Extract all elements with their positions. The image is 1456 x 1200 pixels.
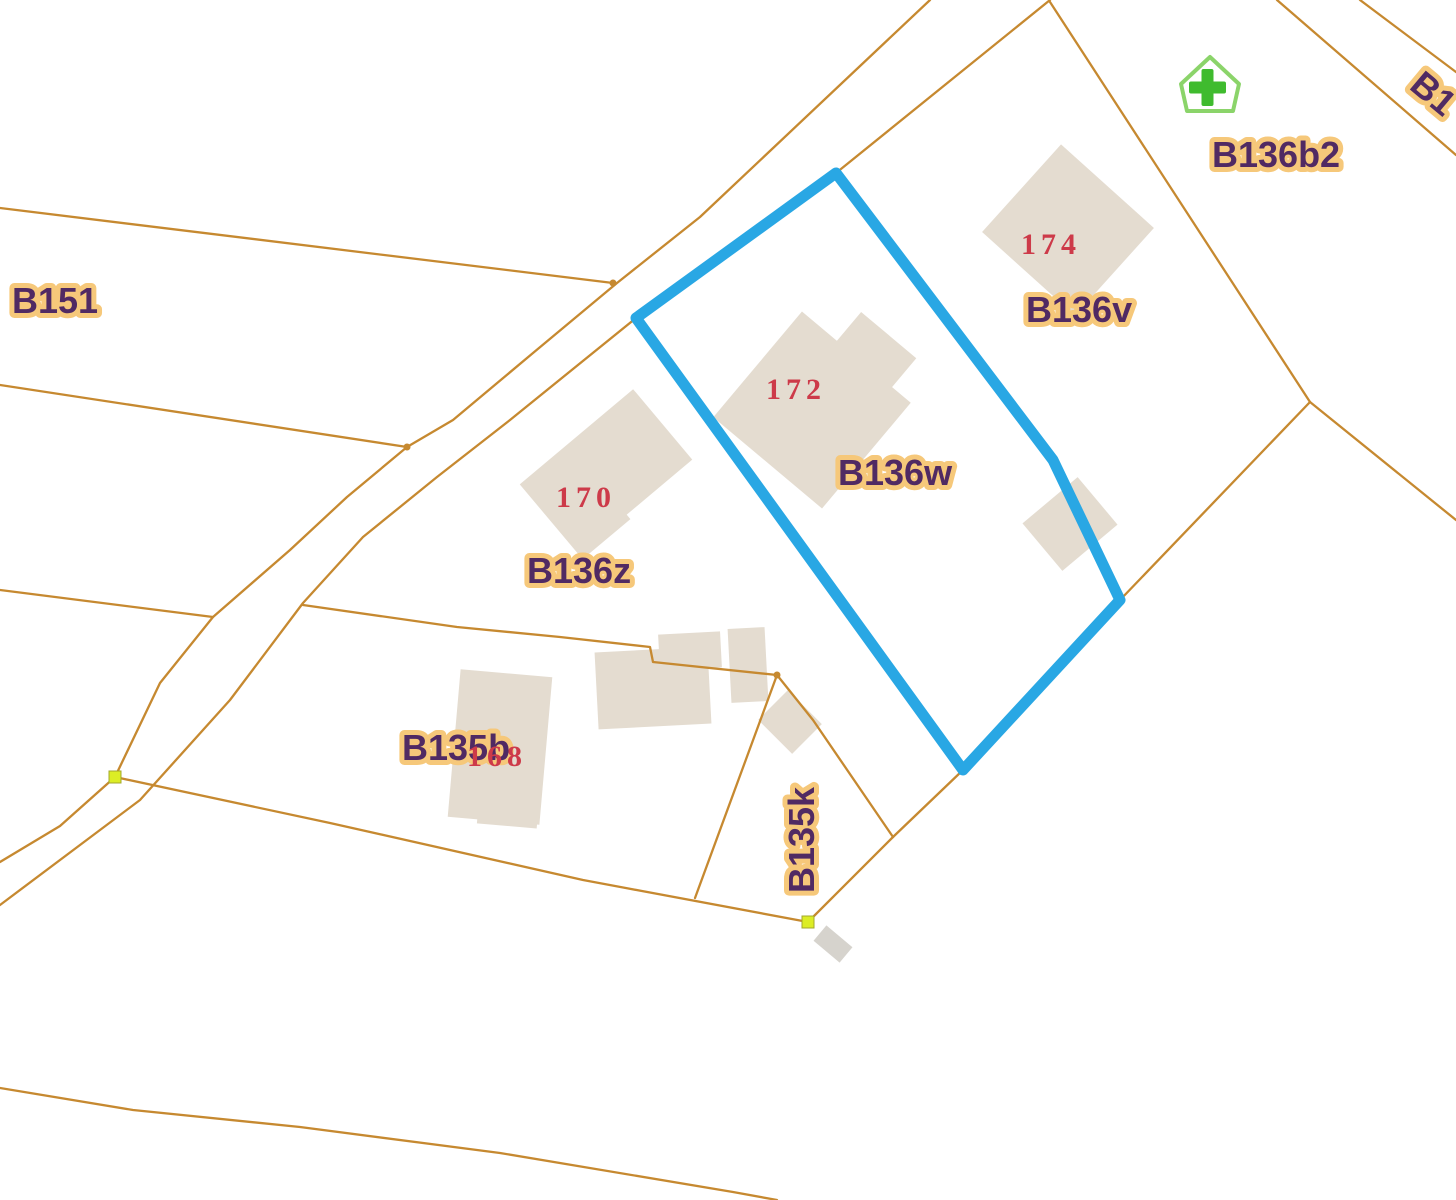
boundary-junction-dot bbox=[404, 444, 411, 451]
building-cluster-east bbox=[728, 627, 769, 703]
boundary-b135k-northeast bbox=[893, 770, 963, 837]
boundary-topright-inner bbox=[1360, 0, 1456, 72]
building-168-annex bbox=[477, 795, 539, 828]
boundary-bottom-long bbox=[0, 1088, 777, 1200]
boundary-b151-north bbox=[0, 208, 613, 283]
map-canvas[interactable]: B151 B136b2 B136v B136w B136z B135b B135… bbox=[0, 0, 1456, 1200]
boundary-b151-middle bbox=[0, 385, 407, 447]
building-cluster-north bbox=[658, 631, 722, 670]
boundary-junction-dot bbox=[774, 672, 781, 679]
parcel-label-b135k: B135k bbox=[781, 786, 822, 893]
poi-cross-icon bbox=[1189, 82, 1226, 94]
boundary-junction-dot bbox=[610, 280, 617, 287]
boundary-b136v-south bbox=[1120, 402, 1310, 600]
house-number-168: 168 bbox=[467, 740, 527, 773]
boundary-east-continuation bbox=[1310, 402, 1456, 520]
parcel-label-b136w: B136w bbox=[838, 452, 953, 493]
parcel-label-b136b2: B136b2 bbox=[1212, 134, 1340, 175]
boundaries-layer bbox=[0, 0, 1456, 1200]
house-number-174: 174 bbox=[1021, 228, 1081, 261]
building-gray-shed bbox=[814, 925, 853, 962]
parcel-label-b151: B151 bbox=[12, 280, 98, 321]
parcel-label-b136z: B136z bbox=[527, 550, 631, 591]
house-number-172: 172 bbox=[766, 373, 826, 406]
survey-point-marker bbox=[802, 916, 814, 928]
cadastral-map-view: B151 B136b2 B136v B136w B136z B135b B135… bbox=[0, 0, 1456, 1200]
boundary-b151-south bbox=[0, 590, 213, 617]
parcel-labels-layer: B151 B136b2 B136v B136w B136z B135b B135… bbox=[12, 63, 1456, 893]
health-poi-icon bbox=[1181, 57, 1239, 111]
house-number-170: 170 bbox=[556, 481, 616, 514]
parcel-label-b136v: B136v bbox=[1026, 289, 1132, 330]
survey-point-marker bbox=[109, 771, 121, 783]
